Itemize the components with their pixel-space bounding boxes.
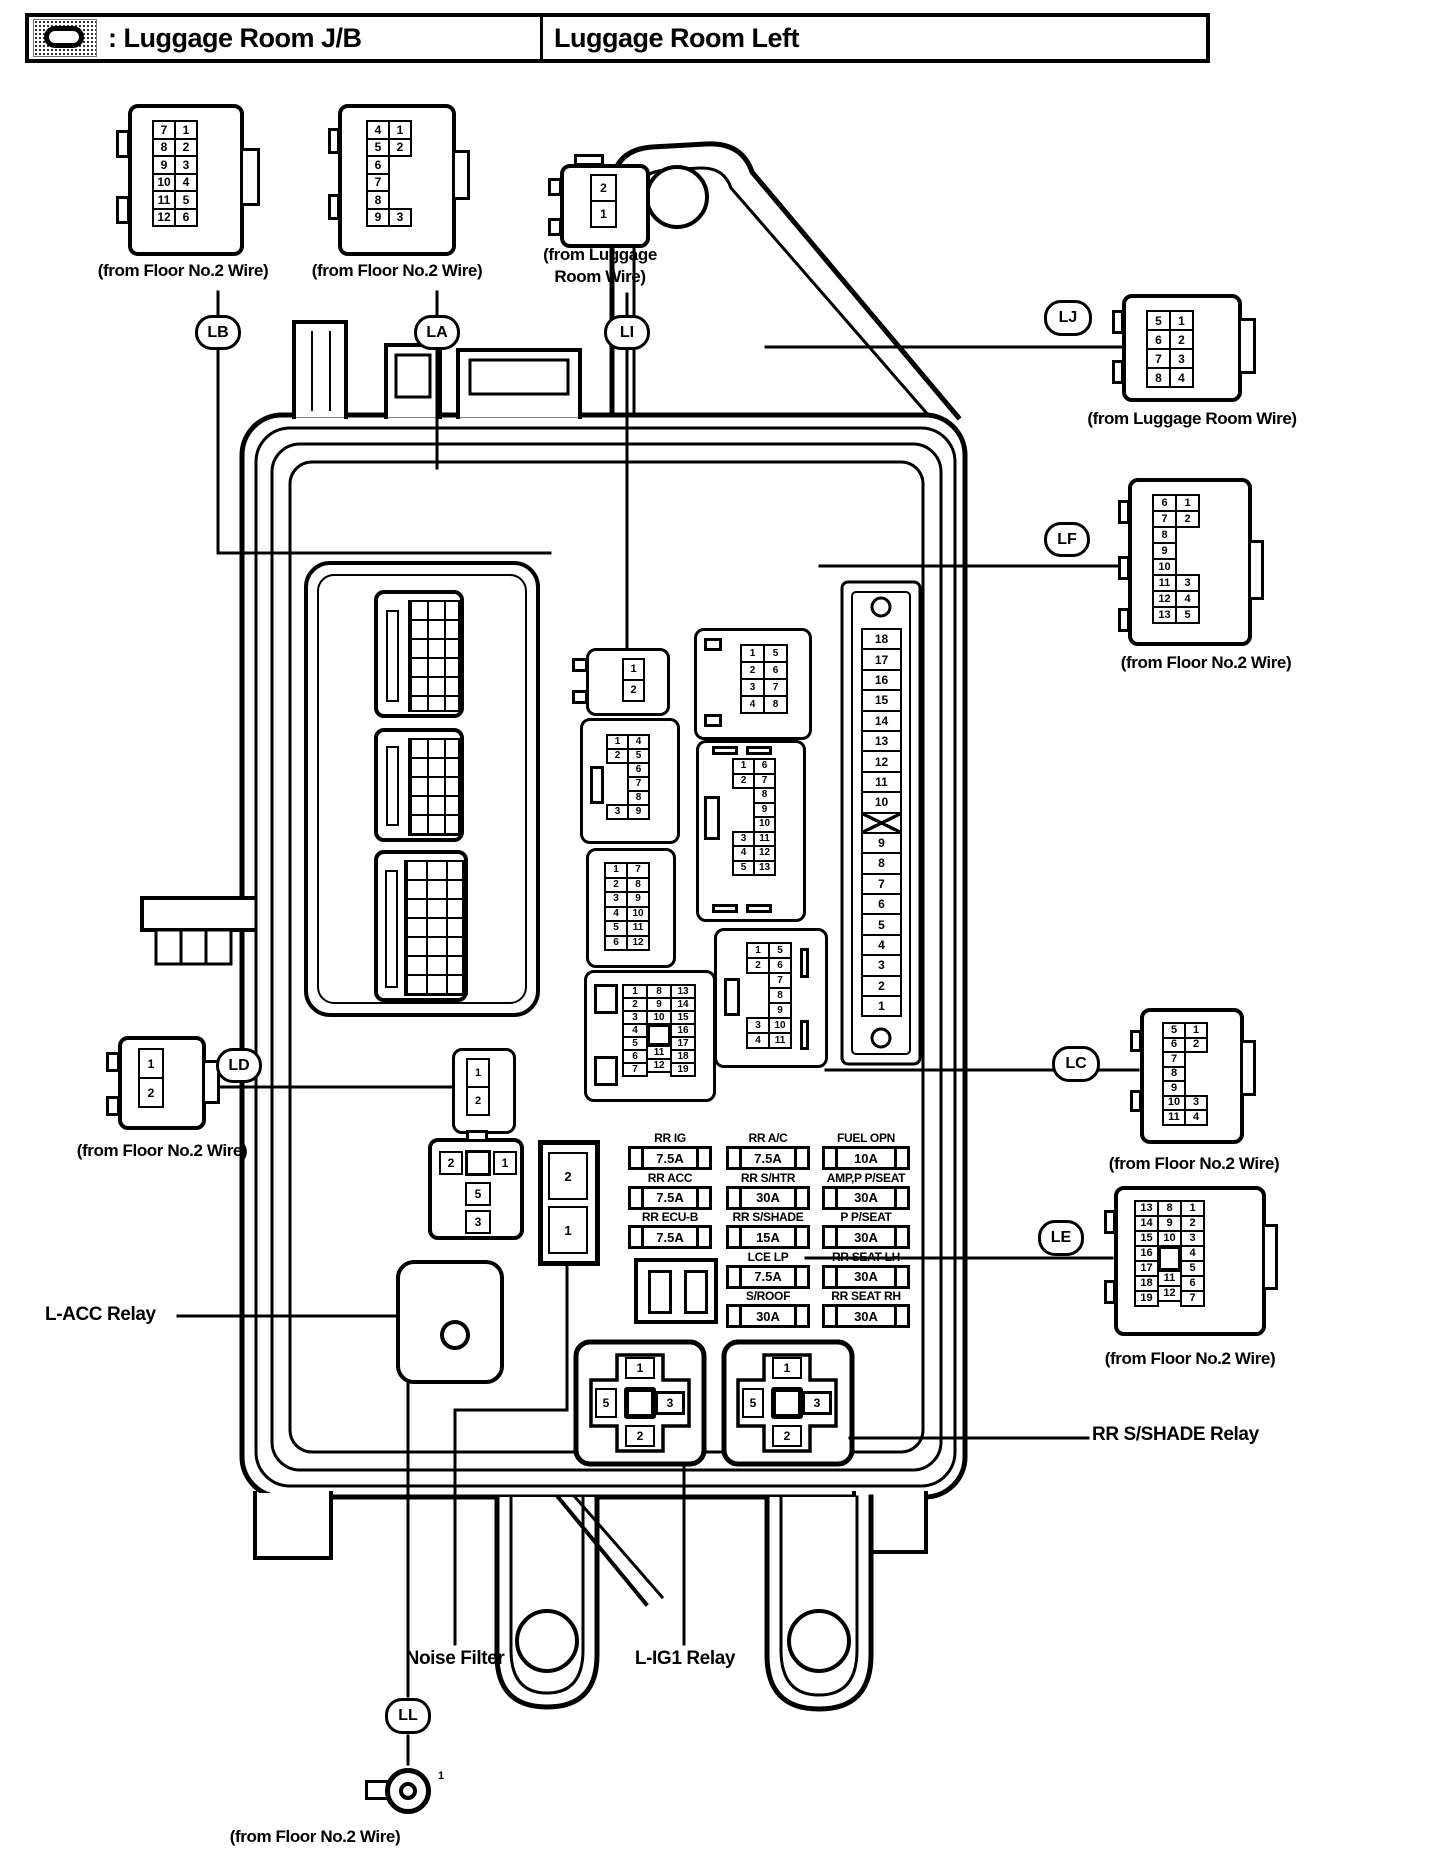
pin-cell: 2 [138, 1077, 164, 1108]
left-bracket [142, 898, 254, 964]
socket-grid [408, 738, 460, 836]
pin-cell: 4 [1169, 367, 1194, 388]
connector-lf-stub [1118, 556, 1130, 580]
pin-cell: 6 [861, 893, 902, 915]
fuse-name: RR SEAT LH [822, 1250, 910, 1265]
connector-la-latch [452, 150, 470, 200]
pin-cell: 6 [604, 935, 628, 952]
internal-8pin-slot [704, 714, 722, 727]
connector-ld-pins: 12 [138, 1048, 164, 1108]
pin-cell: 2 [1175, 510, 1200, 528]
lacc-relay-footprint: 2 1 5 3 [428, 1138, 524, 1240]
label-noise-filter: Noise Filter [385, 1648, 525, 1670]
fuse-amp: 7.5A [644, 1149, 696, 1167]
fuse: RR SEAT LH30A [822, 1250, 910, 1289]
fuse-amp: 30A [742, 1307, 794, 1325]
lacc-pin-1: 1 [493, 1151, 517, 1175]
internal-9pin-slot [590, 766, 604, 804]
internal-19pin-slot [594, 1056, 618, 1086]
noise-pin-2: 2 [548, 1152, 588, 1200]
connector-lc-latch [1240, 1040, 1256, 1096]
pin-cell: 5 [861, 913, 902, 935]
fuse: RR A/C7.5A [726, 1131, 810, 1170]
pin-cell: 12 [626, 935, 650, 952]
internal-19pin-pins: 12345678910111213141516171819 [622, 984, 696, 1077]
pin-cell: 12 [152, 208, 176, 228]
fuse: RR ECU-B7.5A [628, 1210, 712, 1249]
socket-grid [408, 600, 460, 712]
fuse-amp: 7.5A [644, 1228, 696, 1246]
pin-cell: 2 [746, 957, 770, 974]
pin-cell: 19 [670, 1062, 696, 1077]
pin-cell: 2 [466, 1086, 490, 1116]
label-rrsshade-relay: RR S/SHADE Relay [1092, 1424, 1259, 1446]
pin-cell [646, 1023, 672, 1047]
internal-13pin-slot [746, 904, 772, 913]
pin-cell: 11 [1162, 1109, 1186, 1126]
caption-le: (from Floor No.2 Wire) [1068, 1348, 1312, 1370]
pin-cell: 3 [388, 208, 412, 228]
pin-cell: 7 [1146, 348, 1171, 369]
internal-13pin-slot [704, 796, 720, 840]
internal-19pin-slot [594, 984, 618, 1014]
fuse-amp: 10A [838, 1149, 894, 1167]
lacc-pin-3: 3 [465, 1210, 491, 1234]
fuse-amp: 15A [742, 1228, 794, 1246]
fuse: RR SEAT RH30A [822, 1289, 910, 1328]
fuse-name: RR A/C [726, 1131, 810, 1146]
connector-lb-latch [240, 148, 260, 206]
fuse-name: RR ECU-B [628, 1210, 712, 1225]
fuse: RR IG7.5A [628, 1131, 712, 1170]
pin-cell: 19 [1134, 1290, 1159, 1307]
pin-cell: 7 [622, 1062, 648, 1077]
fuse-box: 7.5A [628, 1146, 712, 1170]
header-divider [540, 15, 543, 61]
pin-cell: 3 [861, 954, 902, 976]
pin-cell: 8 [861, 852, 902, 874]
pin-cell: 13 [1152, 606, 1177, 624]
connector-lf-stub [1118, 500, 1130, 524]
label-lig1-relay: L-IG1 Relay [610, 1648, 760, 1670]
oval-le: LE [1038, 1220, 1084, 1256]
pin-cell: 1 [861, 995, 902, 1017]
spare-slot [684, 1270, 708, 1314]
fuse: RR S/HTR30A [726, 1171, 810, 1210]
header-symbol-label: : Luggage Room J/B [108, 23, 362, 54]
pin-cell: 2 [622, 679, 645, 702]
pin-cell: 8 [763, 695, 788, 714]
connector-lf-stub [1118, 608, 1130, 632]
fuse: RR ACC7.5A [628, 1171, 712, 1210]
oval-lj: LJ [1044, 300, 1092, 336]
fuse-name: S/ROOF [726, 1289, 810, 1304]
pin-cell: 2 [1184, 1037, 1208, 1054]
internal-socket-block [374, 728, 464, 842]
noise-filter-block: 2 1 [538, 1140, 600, 1266]
fuse-name: FUEL OPN [822, 1131, 910, 1146]
connector-li-stub [548, 178, 562, 196]
pin-cell: 5 [1175, 606, 1200, 624]
fuse-box: 30A [822, 1225, 910, 1249]
pin-cell: 8 [1146, 367, 1171, 388]
connector-la-stub [328, 128, 340, 154]
pin-cell: 4 [746, 1032, 770, 1049]
pin-cell: 2 [732, 773, 755, 790]
caption-ld: (from Floor No.2 Wire) [38, 1140, 286, 1162]
symbol-oval [44, 26, 84, 48]
fuse-amp: 30A [838, 1268, 894, 1286]
pin-cell: 2 [590, 174, 617, 202]
internal-ld2-pins: 12 [466, 1058, 490, 1116]
fuse-amp: 7.5A [742, 1268, 794, 1286]
fuse-amp: 30A [838, 1307, 894, 1325]
connector-la-stub [328, 194, 340, 220]
pin-cell: 1 [622, 658, 645, 681]
page-title: Luggage Room Left [554, 23, 799, 54]
lacc-pin-2: 2 [439, 1151, 463, 1175]
ll-ring-terminal [385, 1768, 431, 1814]
internal-11pin-slot [800, 1020, 809, 1050]
fuse-box: 7.5A [628, 1225, 712, 1249]
internal-13pin-pins: 12345678910111213 [732, 758, 776, 876]
connector-lc-pins: 5678910111234 [1162, 1022, 1208, 1126]
connector-lf-pins: 67891011121312345 [1152, 494, 1200, 624]
pin-cell: 3 [1169, 348, 1194, 369]
pin-cell: 3 [606, 804, 629, 820]
ll-pin-number: 1 [438, 1770, 444, 1782]
fuse: RR S/SHADE15A [726, 1210, 810, 1249]
pin-cell: 9 [861, 832, 902, 854]
connector-lf-latch [1248, 540, 1264, 600]
internal-11pin-pins: 1234567891011 [746, 942, 792, 1049]
rrsshade-pin-1: 1 [772, 1357, 802, 1379]
pin-cell: 11 [861, 771, 902, 793]
lacc-relay-box [398, 1262, 502, 1382]
connector-le-pins: 13141516171819891011121234567 [1134, 1200, 1205, 1307]
connector-lj-stub [1112, 360, 1124, 384]
pin-cell [861, 812, 902, 834]
pin-cell: 10 [861, 791, 902, 813]
lig1-pin-3: 3 [655, 1391, 685, 1415]
oval-ll: LL [385, 1698, 431, 1734]
pin-cell: 2 [388, 138, 412, 158]
lig1-pin-2: 2 [625, 1425, 655, 1447]
pin-cell: 5 [732, 860, 755, 877]
diagram-page: : Luggage Room J/B Luggage Room Left 789… [0, 0, 1440, 1856]
caption-li: (from Luggage Room Wire) [505, 244, 695, 288]
internal-8pin-pins: 12345678 [740, 644, 788, 714]
connector-lc-stub [1130, 1090, 1142, 1112]
pin-cell: 4 [1184, 1109, 1208, 1126]
pin-cell: 12 [646, 1058, 672, 1073]
pin-cell: 5 [1146, 310, 1171, 331]
fuse-amp: 30A [742, 1189, 794, 1207]
pin-cell: 17 [861, 648, 902, 670]
pin-cell: 2 [606, 748, 629, 764]
fuse: P P/SEAT30A [822, 1210, 910, 1249]
rrsshade-center-square [771, 1387, 803, 1419]
caption-la: (from Floor No.2 Wire) [277, 260, 517, 282]
socket-slot [386, 746, 399, 826]
pin-cell: 4 [861, 934, 902, 956]
connector-la-pins: 456789123 [366, 120, 412, 227]
noise-pin-1: 1 [548, 1206, 588, 1254]
ll-ring-hole [399, 1782, 417, 1800]
lacc-pin-x [465, 1150, 491, 1176]
oval-la: LA [414, 315, 460, 350]
fuse-box: 30A [822, 1265, 910, 1289]
connector-le-stub [1104, 1210, 1116, 1234]
caption-lf: (from Floor No.2 Wire) [1085, 652, 1327, 674]
rrsshade-pin-2: 2 [772, 1425, 802, 1447]
pin-cell: 15 [861, 689, 902, 711]
caption-lc: (from Floor No.2 Wire) [1072, 1153, 1316, 1175]
socket-slot [385, 870, 398, 988]
lacc-pin-5: 5 [465, 1182, 491, 1206]
pin-cell: 7 [1180, 1290, 1205, 1307]
caption-ll: (from Floor No.2 Wire) [190, 1826, 440, 1848]
pin-cell: 13 [861, 730, 902, 752]
fuse-box: 15A [726, 1225, 810, 1249]
fuse: FUEL OPN10A [822, 1131, 910, 1170]
pin-cell: 11 [768, 1032, 792, 1049]
oval-li: LI [604, 315, 650, 350]
lig1-pin-1: 1 [625, 1357, 655, 1379]
connector-ld-stub [106, 1052, 120, 1072]
caption-li-line1: (from Luggage [505, 244, 695, 266]
pin-cell: 18 [861, 628, 902, 650]
internal-2pin-stub [572, 658, 588, 672]
pin-cell: 7 [861, 873, 902, 895]
oval-lb: LB [195, 315, 241, 350]
pin-cell: 13 [753, 860, 776, 877]
fuse-name: RR S/HTR [726, 1171, 810, 1186]
label-lacc-relay: L-ACC Relay [45, 1304, 156, 1326]
connector-lc-stub [1130, 1030, 1142, 1052]
fuse-box: 30A [726, 1186, 810, 1210]
fuse-name: RR ACC [628, 1171, 712, 1186]
junction-block-symbol-icon [33, 19, 97, 57]
connector-le-stub [1104, 1280, 1116, 1304]
pin-cell: 1 [138, 1048, 164, 1079]
fuse: S/ROOF30A [726, 1289, 810, 1328]
fuse-box: 7.5A [628, 1186, 712, 1210]
oval-lc: LC [1052, 1046, 1100, 1082]
connector-lb-stub [116, 196, 130, 224]
fuse-name: P P/SEAT [822, 1210, 910, 1225]
pin-cell: 2 [861, 975, 902, 997]
internal-11pin-slot [724, 978, 740, 1016]
fuse-name: RR SEAT RH [822, 1289, 910, 1304]
lig1-center-square [624, 1387, 656, 1419]
connector-ld-stub [106, 1096, 120, 1116]
pin-cell: 9 [627, 804, 650, 820]
internal-2pin-stub [572, 690, 588, 704]
pin-cell: 16 [861, 669, 902, 691]
fuse-box: 30A [822, 1186, 910, 1210]
connector-li-stub [548, 218, 562, 236]
internal-socket-block [374, 590, 464, 718]
fuse-amp: 7.5A [742, 1149, 794, 1167]
rrsshade-pin-5: 5 [742, 1388, 764, 1418]
connector-li-stub [574, 154, 604, 166]
fuse-box: 7.5A [726, 1265, 810, 1289]
rrsshade-pin-3: 3 [802, 1391, 832, 1415]
pin-cell: 4 [740, 695, 765, 714]
pin-cell: 1 [1169, 310, 1194, 331]
connector-lb-pins: 789101112123456 [152, 120, 198, 227]
connector-lj-pins: 56781234 [1146, 310, 1194, 388]
internal-2pin-pins: 12 [622, 658, 645, 702]
connector-li-pins: 21 [590, 174, 617, 228]
fuse-name: RR IG [628, 1131, 712, 1146]
fuse-amp: 30A [838, 1189, 894, 1207]
fuse-box: 10A [822, 1146, 910, 1170]
fuse-amp: 30A [838, 1228, 894, 1246]
caption-li-line2: Room Wire) [505, 266, 695, 288]
socket-slot [386, 610, 399, 702]
fuse-strip: 181716151413121110987654321 [861, 628, 902, 1017]
pin-cell: 6 [174, 208, 198, 228]
pin-cell: 1 [466, 1058, 490, 1088]
fuse-box: 7.5A [726, 1146, 810, 1170]
pin-cell: 6 [1146, 329, 1171, 350]
lig1-pin-5: 5 [595, 1388, 617, 1418]
pin-cell: 9 [366, 208, 390, 228]
pin-cell: 14 [861, 710, 902, 732]
internal-11pin-slot [800, 948, 809, 978]
connector-lj-latch [1238, 318, 1256, 374]
pin-cell: 12 [861, 750, 902, 772]
internal-13pin-slot [712, 904, 738, 913]
fuse: AMP,P P/SEAT30A [822, 1171, 910, 1210]
internal-9pin-pins: 123456789 [606, 734, 650, 820]
internal-12pin-pins: 123456789101112 [604, 862, 650, 951]
pin-cell [1157, 1245, 1182, 1272]
internal-socket-block [374, 850, 468, 1002]
pin-cell: 12 [1157, 1285, 1182, 1302]
connector-lb-stub [116, 130, 130, 158]
connector-lj-stub [1112, 310, 1124, 334]
fuse-name: RR S/SHADE [726, 1210, 810, 1225]
pin-cell: 1 [590, 200, 617, 228]
fuse-name: LCE LP [726, 1250, 810, 1265]
connector-le-latch [1262, 1224, 1278, 1290]
socket-grid [404, 860, 464, 996]
spare-slot [648, 1270, 672, 1314]
fuse-amp: 7.5A [644, 1189, 696, 1207]
oval-ld: LD [216, 1048, 262, 1083]
internal-13pin-slot [712, 746, 738, 755]
fuse-name: AMP,P P/SEAT [822, 1171, 910, 1186]
lacc-footprint-notch [466, 1130, 488, 1142]
caption-lj: (from Luggage Room Wire) [1056, 408, 1328, 430]
internal-8pin-slot [704, 638, 722, 651]
pin-cell: 2 [1169, 329, 1194, 350]
internal-13pin-slot [746, 746, 772, 755]
fuse-box: 30A [726, 1304, 810, 1328]
fuse-box: 30A [822, 1304, 910, 1328]
fuse: LCE LP7.5A [726, 1250, 810, 1289]
oval-lf: LF [1044, 522, 1090, 557]
spare-fuse-box [634, 1258, 718, 1324]
